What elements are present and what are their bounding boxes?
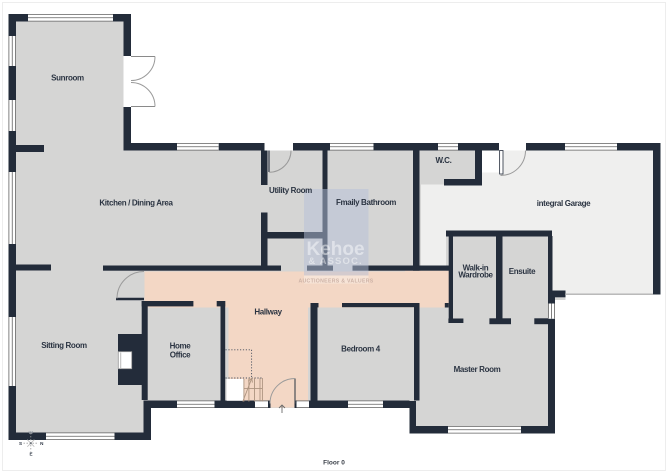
svg-text:S: S [19, 441, 22, 446]
svg-text:E: E [29, 451, 32, 456]
svg-text:Kitchen / Dining Area: Kitchen / Dining Area [99, 199, 173, 208]
svg-text:Office: Office [170, 351, 191, 360]
svg-text:integral Garage: integral Garage [537, 199, 591, 208]
svg-text:Sitting Room: Sitting Room [41, 341, 87, 350]
svg-text:AUCTIONEERS & VALUERS: AUCTIONEERS & VALUERS [298, 279, 373, 285]
svg-text:Hallway: Hallway [254, 308, 282, 317]
svg-text:Home: Home [170, 342, 192, 351]
svg-text:Utility Room: Utility Room [269, 186, 312, 195]
svg-text:Floor 0: Floor 0 [323, 459, 345, 466]
svg-text:& ASSOC.: & ASSOC. [308, 256, 362, 267]
svg-text:Master Room: Master Room [454, 365, 501, 374]
svg-text:Bedroom 4: Bedroom 4 [341, 345, 381, 354]
svg-text:W: W [29, 430, 34, 435]
svg-text:W.C.: W.C. [436, 156, 452, 165]
svg-text:Sunroom: Sunroom [51, 74, 84, 83]
svg-text:Ensuite: Ensuite [509, 267, 536, 276]
svg-text:Wardrobe: Wardrobe [458, 271, 493, 280]
svg-text:Fmaily Bathroom: Fmaily Bathroom [336, 198, 396, 207]
